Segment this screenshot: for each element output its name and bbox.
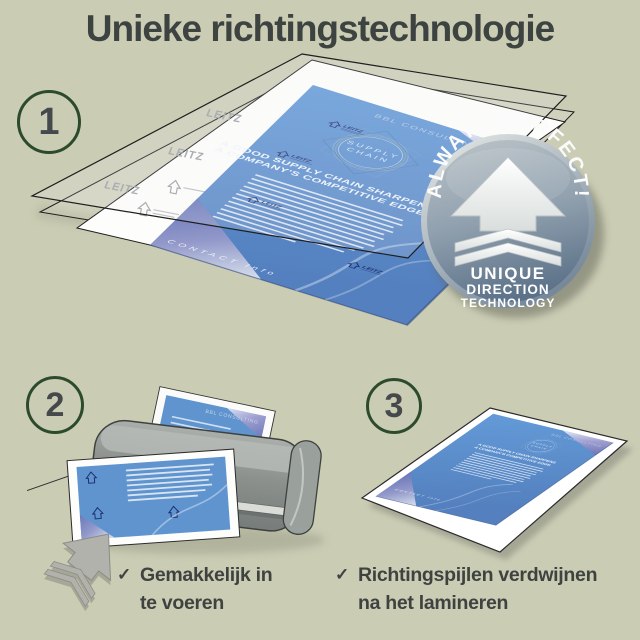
pouch-edge-line (26, 476, 71, 491)
badge-line2: DIRECTION (466, 282, 549, 297)
step-1-marker: 1 (17, 90, 81, 154)
caption-step-2-line2: te voeren (140, 589, 272, 617)
illustration-svg: LEITZ LEITZ LEITZ (0, 0, 640, 640)
always-perfect-badge: ALWAYS PERFECT! UNIQUE DIRECTION TECHNOL… (421, 109, 604, 318)
step-3-number: 3 (385, 387, 404, 426)
step-3-marker: 3 (366, 378, 422, 434)
caption-step-3-line2: na het lamineren (358, 589, 597, 617)
badge-line3: TECHNOLOGY (461, 296, 556, 310)
checkmark-icon: ✓ (335, 561, 349, 617)
laminating-infographic: Unieke richtingstechnologie (0, 0, 640, 640)
step2-entry-document (25, 449, 240, 551)
caption-step-2-line1: Gemakkelijk in (140, 561, 272, 589)
page-title: Unieke richtingstechnologie (0, 8, 640, 50)
step-2-marker: 2 (26, 376, 84, 434)
caption-step-3-text: Richtingspijlen verdwijnen na het lamine… (358, 561, 597, 617)
caption-step-2: ✓ Gemakkelijk in te voeren (117, 561, 272, 617)
step-2-number: 2 (46, 386, 65, 425)
caption-step-3: ✓ Richtingspijlen verdwijnen na het lami… (335, 561, 597, 617)
caption-step-2-text: Gemakkelijk in te voeren (140, 561, 272, 617)
caption-step-3-line1: Richtingspijlen verdwijnen (358, 561, 597, 589)
badge-line1: UNIQUE (470, 264, 545, 283)
checkmark-icon: ✓ (117, 561, 131, 617)
step-1-number: 1 (38, 101, 59, 144)
